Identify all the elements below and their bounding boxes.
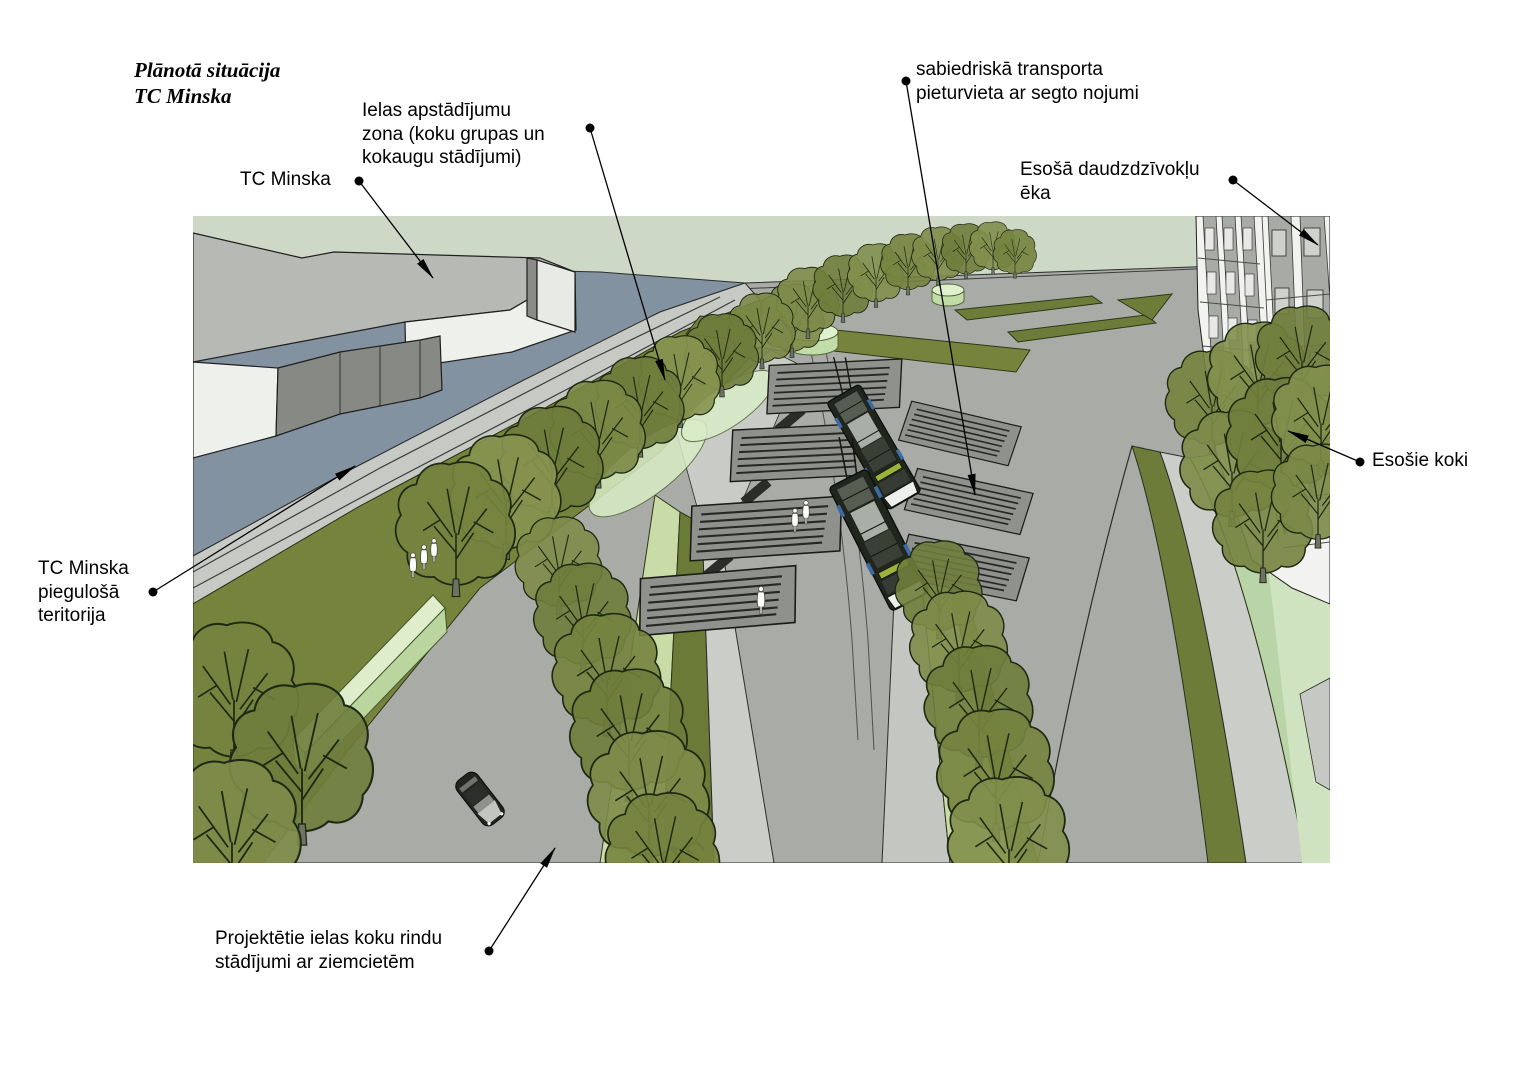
label-public-transport-stop: sabiedriskā transporta pieturvieta ar se… [916,58,1139,105]
drawing-title: Plānotā situācija TC Minska [134,58,280,109]
label-street-planting-zone: Ielas apstādījumu zona (koku grupas un k… [362,99,545,170]
drawing-title-line2: TC Minska [134,84,280,110]
site-plan-rendering [193,216,1330,863]
site-plan-page: Plānotā situācija TC Minska TC Minska Ie… [0,0,1526,1080]
drawing-title-line1: Plānotā situācija [134,58,280,84]
label-adjacent-territory: TC Minska piegulošā teritorija [38,557,129,628]
label-apartment-building: Esošā daudzdzīvokļu ēka [1020,158,1200,205]
label-existing-trees: Esošie koki [1372,449,1468,473]
label-tc-minska: TC Minska [240,168,331,192]
leader-projected-tree-rows [489,848,555,951]
label-projected-tree-rows: Projektētie ielas koku rindu stādījumi a… [215,927,442,974]
